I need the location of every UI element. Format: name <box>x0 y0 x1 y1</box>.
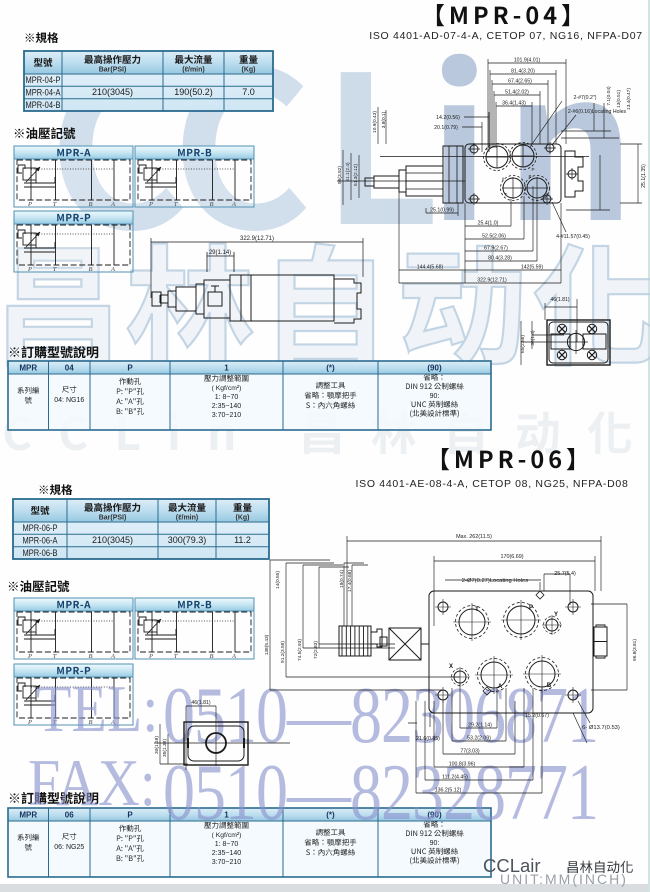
svg-text:T: T <box>475 607 479 613</box>
svg-text:90:: 90: <box>430 393 440 400</box>
svg-text:20.1(0.79): 20.1(0.79) <box>434 125 458 131</box>
svg-text:15.2(0.67): 15.2(0.67) <box>525 713 549 719</box>
svg-text:MPR-04-A: MPR-04-A <box>26 88 61 98</box>
svg-text:67.9(2.67): 67.9(2.67) <box>484 246 508 252</box>
svg-text:10.9(0.43): 10.9(0.43) <box>372 111 378 133</box>
svg-text:2-#7(0.2″): 2-#7(0.2″) <box>574 95 597 101</box>
svg-text:ISO 4401-AD-07-4-A, CETOP 07,: ISO 4401-AD-07-4-A, CETOP 07, NG16, NFPA… <box>369 30 643 42</box>
svg-text:80.4(3.28): 80.4(3.28) <box>488 256 512 262</box>
svg-text:300(79.3): 300(79.3) <box>168 535 207 545</box>
svg-text:MPR-04-B: MPR-04-B <box>26 100 61 110</box>
svg-text:36(1.4): 36(1.4) <box>530 330 536 346</box>
svg-text:B: B <box>528 174 531 179</box>
svg-text:90:: 90: <box>430 840 440 847</box>
svg-text:170(6.69): 170(6.69) <box>500 554 523 560</box>
svg-text:7.1(0.04): 7.1(0.04) <box>606 86 612 106</box>
svg-text:TEL:: TEL: <box>36 671 158 746</box>
svg-text:P: P <box>127 364 133 373</box>
svg-text:3:70~210: 3:70~210 <box>212 859 241 866</box>
svg-text:190(50.2): 190(50.2) <box>174 87 213 97</box>
svg-text:21.6(0.85): 21.6(0.85) <box>416 736 440 742</box>
svg-text:138(5.43): 138(5.43) <box>264 634 270 655</box>
svg-text:67.4(2.65): 67.4(2.65) <box>508 79 532 85</box>
svg-text:29.2(1.14): 29.2(1.14) <box>468 723 492 729</box>
svg-text:2-Ø7(0.27)Locating Holes: 2-Ø7(0.27)Locating Holes <box>462 578 528 584</box>
svg-text:46(1.81): 46(1.81) <box>550 297 570 303</box>
svg-text:25.1(0.99): 25.1(0.99) <box>430 208 454 214</box>
svg-text:2-#6(0.16)Locating Holes: 2-#6(0.16)Locating Holes <box>568 109 627 115</box>
svg-text:ISO 4401-AE-08-4-A, CETOP 08,: ISO 4401-AE-08-4-A, CETOP 08, NG25, NFPA… <box>356 478 629 490</box>
svg-text:X: X <box>449 664 453 670</box>
svg-text:2:35~140: 2:35~140 <box>212 850 241 857</box>
svg-text:11.2: 11.2 <box>234 535 251 545</box>
svg-text:Max. 262(11.5): Max. 262(11.5) <box>456 534 492 540</box>
svg-text:MPR: MPR <box>19 364 37 373</box>
svg-text:1: 1 <box>224 364 229 373</box>
svg-text:4-#11.57(0.45): 4-#11.57(0.45) <box>556 234 590 240</box>
svg-text:51.4(2.02): 51.4(2.02) <box>505 90 529 96</box>
svg-text:3:70~210: 3:70~210 <box>212 412 241 419</box>
svg-text:MPR-06-A: MPR-06-A <box>23 536 58 546</box>
svg-text:53.2(2.09): 53.2(2.09) <box>467 736 491 742</box>
svg-text:6- Ø13.7(0.53): 6- Ø13.7(0.53) <box>582 725 620 731</box>
svg-text:13.4(0.47): 13.4(0.47) <box>626 88 632 110</box>
svg-text:06: NG25: 06: NG25 <box>54 844 84 851</box>
svg-text:Bar(PSI): Bar(PSI) <box>99 515 127 522</box>
svg-text:MPR-06-B: MPR-06-B <box>23 548 58 558</box>
svg-text:210(3045): 210(3045) <box>92 87 133 97</box>
svg-text:322.9(12.71): 322.9(12.71) <box>240 236 274 242</box>
svg-text:MPR-04-P: MPR-04-P <box>26 75 61 85</box>
svg-text:2:35~140: 2:35~140 <box>212 403 241 410</box>
svg-text:04: 04 <box>65 364 74 373</box>
svg-text:144.4(5.68): 144.4(5.68) <box>417 265 444 271</box>
svg-text:100.8(3.96): 100.8(3.96) <box>449 762 476 768</box>
svg-text:29(1.14): 29(1.14) <box>209 250 231 256</box>
svg-text:74.5(2.93): 74.5(2.93) <box>297 639 303 661</box>
svg-text:19(0.74): 19(0.74) <box>339 570 345 588</box>
svg-text:17.4(0.68): 17.4(0.68) <box>347 570 353 592</box>
svg-text:96.8(3.81): 96.8(3.81) <box>632 639 638 661</box>
svg-text:36.4(1.43): 36.4(1.43) <box>502 101 526 107</box>
svg-text:(90): (90) <box>427 364 442 373</box>
svg-text:Y: Y <box>554 612 558 618</box>
svg-text:P: P <box>529 605 533 611</box>
svg-text:99(3.92): 99(3.92) <box>337 166 343 184</box>
svg-text:1: 8~70: 1: 8~70 <box>215 394 239 401</box>
svg-text:52.5(2.06): 52.5(2.06) <box>482 234 506 240</box>
svg-text:(*): (*) <box>326 364 335 373</box>
svg-text:14(0.55): 14(0.55) <box>275 571 281 589</box>
svg-text:111.2(4.45): 111.2(4.45) <box>442 775 468 781</box>
svg-text:65(2.56): 65(2.56) <box>520 335 526 353</box>
svg-text:MPR-06-P: MPR-06-P <box>23 523 58 533</box>
svg-text:142(5.59): 142(5.59) <box>521 265 543 271</box>
svg-text:25.4(1.0): 25.4(1.0) <box>478 221 499 227</box>
svg-text:72(2.83): 72(2.83) <box>313 641 319 659</box>
svg-text:7.0: 7.0 <box>242 87 255 97</box>
svg-text:T: T <box>505 192 508 197</box>
svg-text:61.1(2.4): 61.1(2.4) <box>345 162 351 182</box>
svg-text:322.9(12.71): 322.9(12.71) <box>477 278 507 284</box>
svg-text:35(1.38): 35(1.38) <box>162 739 168 757</box>
svg-text:FAX:: FAX: <box>28 745 156 820</box>
svg-text:51.3(2.12): 51.3(2.12) <box>353 164 359 186</box>
svg-text:( Kgf/cm²): ( Kgf/cm²) <box>212 385 242 392</box>
svg-text:46(1.81): 46(1.81) <box>191 700 211 706</box>
svg-text:30(1.18): 30(1.18) <box>154 736 160 754</box>
svg-text:81.4(3.20): 81.4(3.20) <box>511 69 535 75</box>
svg-text:P: P <box>531 167 534 172</box>
svg-text:13(0.51): 13(0.51) <box>616 90 622 108</box>
svg-text:25.1(1.35): 25.1(1.35) <box>641 164 647 188</box>
svg-text:1: 8~70: 1: 8~70 <box>215 841 239 848</box>
svg-text:B: B <box>547 683 552 689</box>
svg-text:25.7(5.4): 25.7(5.4) <box>554 571 576 577</box>
svg-text:(Kg): (Kg) <box>236 515 250 522</box>
svg-text:77(3.03): 77(3.03) <box>460 749 480 755</box>
svg-text:14.2(0.56): 14.2(0.56) <box>436 115 460 121</box>
svg-text:Bar(PSI): Bar(PSI) <box>99 67 127 74</box>
svg-text:04: NG16: 04: NG16 <box>54 397 84 404</box>
svg-text:101.9(4.01): 101.9(4.01) <box>514 58 541 64</box>
svg-text:(ℓ/min): (ℓ/min) <box>182 67 204 74</box>
svg-text:(Kg): (Kg) <box>242 67 256 74</box>
svg-text:136.2(5.12): 136.2(5.12) <box>435 788 462 794</box>
svg-text:A: A <box>498 684 503 690</box>
svg-text:CCLair: CCLair <box>483 855 541 876</box>
svg-text:91.2(3.59): 91.2(3.59) <box>280 641 286 663</box>
svg-text:A: A <box>522 142 525 147</box>
svg-text:(ℓ/min): (ℓ/min) <box>176 515 198 522</box>
svg-text:210(3045): 210(3045) <box>92 535 133 545</box>
